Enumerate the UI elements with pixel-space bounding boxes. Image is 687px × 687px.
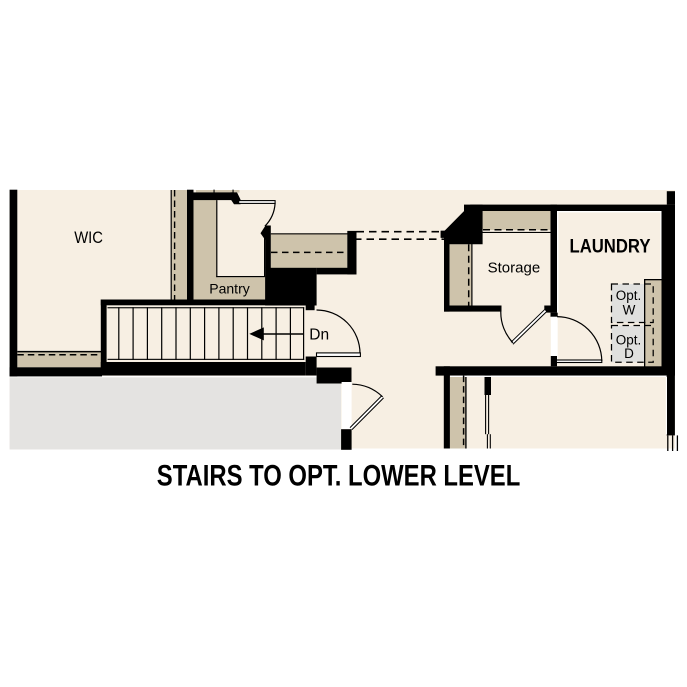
svg-text:D: D [624, 346, 634, 361]
svg-text:W: W [623, 303, 636, 318]
svg-text:Pantry: Pantry [209, 280, 249, 296]
svg-text:WIC: WIC [74, 228, 103, 247]
svg-text:Opt.: Opt. [616, 288, 642, 303]
svg-text:LAUNDRY: LAUNDRY [570, 236, 651, 257]
svg-text:Storage: Storage [488, 259, 541, 276]
svg-text:Dn: Dn [309, 326, 329, 343]
svg-text:STAIRS TO OPT. LOWER LEVEL: STAIRS TO OPT. LOWER LEVEL [157, 459, 521, 492]
